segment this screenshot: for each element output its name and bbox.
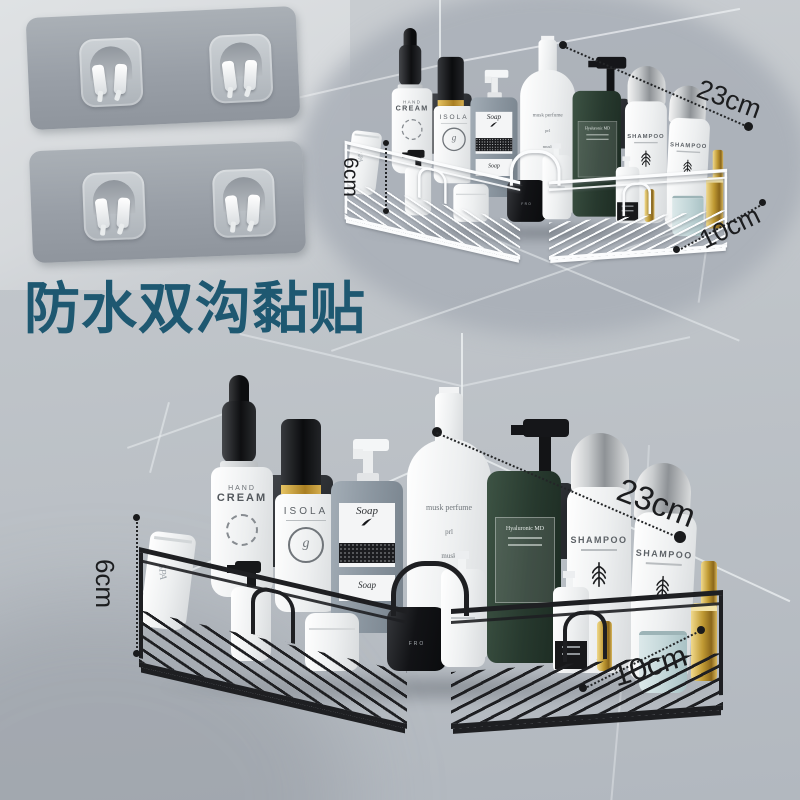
dimension-dot [673, 246, 680, 253]
shelf-unit-white: SPA HAND CREAM ISOLA g Soap [342, 28, 748, 244]
dimension-label-6cm-top: 6cm [338, 157, 362, 197]
bird-icon [360, 517, 374, 527]
product-image: 防水双沟黏贴 SPA HAND CREAM ISOLA g [0, 0, 800, 800]
shampoo-silver-cap [628, 66, 666, 105]
dimension-dot [383, 140, 389, 146]
dimension-dot [697, 626, 705, 634]
dimension-line-6cm-bottom [136, 518, 138, 652]
isola-cap [438, 57, 464, 102]
isola-gold-band [281, 485, 321, 494]
hand-cream-cap [222, 401, 256, 463]
green-pump-stem [539, 437, 551, 473]
basket-arch [563, 609, 607, 662]
green-pump-stem [607, 69, 615, 93]
basket-arch [622, 181, 651, 216]
product-title: 防水双沟黏贴 [24, 264, 366, 345]
basket-corner-arch [391, 561, 469, 616]
hook-plate [82, 171, 147, 241]
corner-basket [342, 134, 748, 244]
hook-plate [212, 168, 277, 238]
adhesive-pad [29, 141, 306, 263]
adhesive-hook [244, 60, 258, 91]
basket-right-wing [549, 169, 727, 261]
divider [441, 123, 467, 124]
green-pump-head [523, 419, 569, 437]
dimension-dot [133, 514, 140, 521]
basket-corner-arch [510, 150, 561, 186]
adhesive-pad [26, 6, 301, 130]
white-shelf-scene: SPA HAND CREAM ISOLA g Soap [342, 28, 748, 244]
dimension-dot [559, 41, 567, 49]
divider [286, 520, 326, 521]
adhesive-hook [116, 197, 130, 228]
soap-pump-spout [485, 70, 509, 78]
adhesive-hook [114, 64, 128, 95]
dimension-dot [759, 199, 766, 206]
soap-pump-spout [353, 439, 389, 451]
dimension-dot [133, 650, 140, 657]
hook-plate [79, 37, 144, 108]
soap-pump-stem [363, 451, 373, 475]
hand-cream-cap [399, 45, 421, 86]
isola-cap [281, 419, 321, 487]
soap-pump-stem [491, 78, 498, 94]
adhesive-hook [246, 194, 260, 225]
hook-plate [209, 33, 274, 104]
dimension-label-6cm-bottom: 6cm [89, 559, 120, 608]
dimension-dot [579, 684, 587, 692]
musk-bottle-neck [539, 40, 557, 74]
bird-icon [489, 121, 498, 128]
dimension-dot [383, 208, 389, 214]
dimension-line-6cm-top [385, 143, 387, 210]
